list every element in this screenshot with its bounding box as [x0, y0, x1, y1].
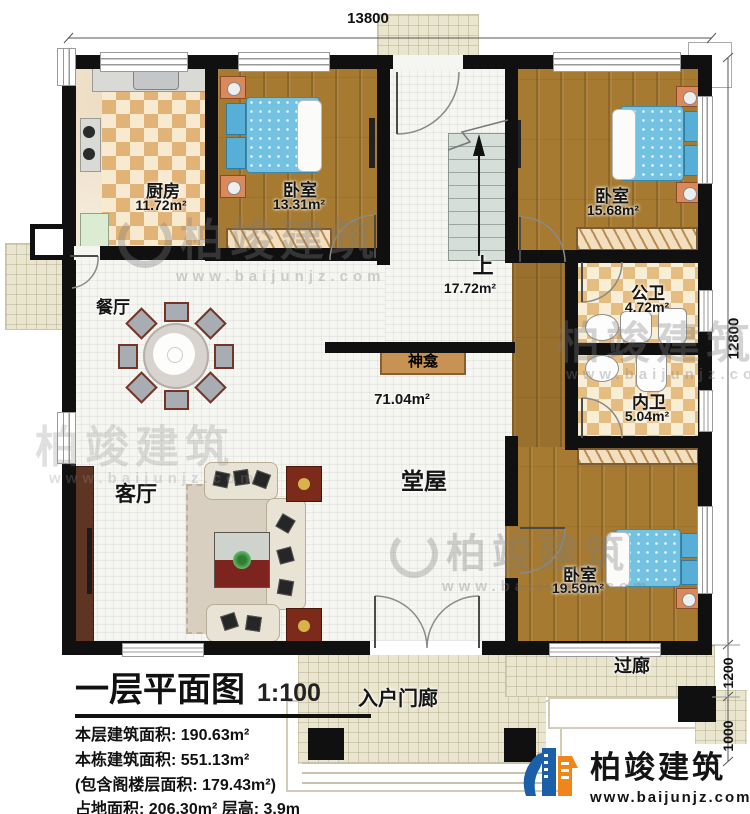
- room-area-great-hall: 71.04m²: [374, 391, 430, 408]
- dimension-right: 12800: [726, 311, 743, 367]
- room-area-bedroom2: 15.68m²: [587, 202, 639, 218]
- door-leaves: [70, 72, 582, 648]
- title-line-attic-area: (包含阁楼层面积: 179.43m²): [75, 774, 375, 799]
- brand-logo-icon: [516, 742, 580, 800]
- room-area-bedroom1: 13.31m²: [273, 196, 325, 212]
- floor-plan-canvas: 神龛: [0, 0, 750, 814]
- dimension-corridor: 1200: [720, 653, 736, 693]
- room-area-public-bath: 4.72m²: [625, 299, 669, 315]
- room-label-corridor: 过廊: [614, 652, 650, 678]
- room-label-living: 客厅: [115, 478, 157, 508]
- title-line-building-area: 本栋建筑面积: 551.13m²: [75, 749, 375, 774]
- room-area-private-bath: 5.04m²: [625, 408, 669, 424]
- title-line-footprint: 占地面积: 206.30m² 层高: 3.9m: [75, 798, 375, 814]
- title-underline: [75, 714, 371, 718]
- room-label-dining: 餐厅: [96, 293, 130, 318]
- brand-logo: 柏竣建筑 www.baijunjz.com: [516, 742, 750, 806]
- title-block: 一层平面图 1:100 本层建筑面积: 190.63m² 本栋建筑面积: 551…: [75, 662, 375, 814]
- stairs-arrow: [448, 120, 508, 256]
- brand-url: www.baijunjz.com: [590, 789, 750, 806]
- room-area-bedroom3: 19.59m²: [552, 580, 604, 596]
- room-label-stairs: 上: [473, 250, 494, 280]
- plan-title: 一层平面图: [75, 662, 245, 711]
- door-arcs: [72, 72, 622, 648]
- room-area-kitchen: 11.72m²: [135, 197, 186, 213]
- room-area-stairs: 17.72m²: [444, 280, 496, 296]
- room-label-great-hall: 堂屋: [401, 462, 447, 496]
- plan-scale: 1:100: [257, 679, 321, 708]
- brand-name: 柏竣建筑: [590, 742, 750, 787]
- dimension-top: 13800: [347, 10, 389, 27]
- title-line-floor-area: 本层建筑面积: 190.63m²: [75, 724, 375, 749]
